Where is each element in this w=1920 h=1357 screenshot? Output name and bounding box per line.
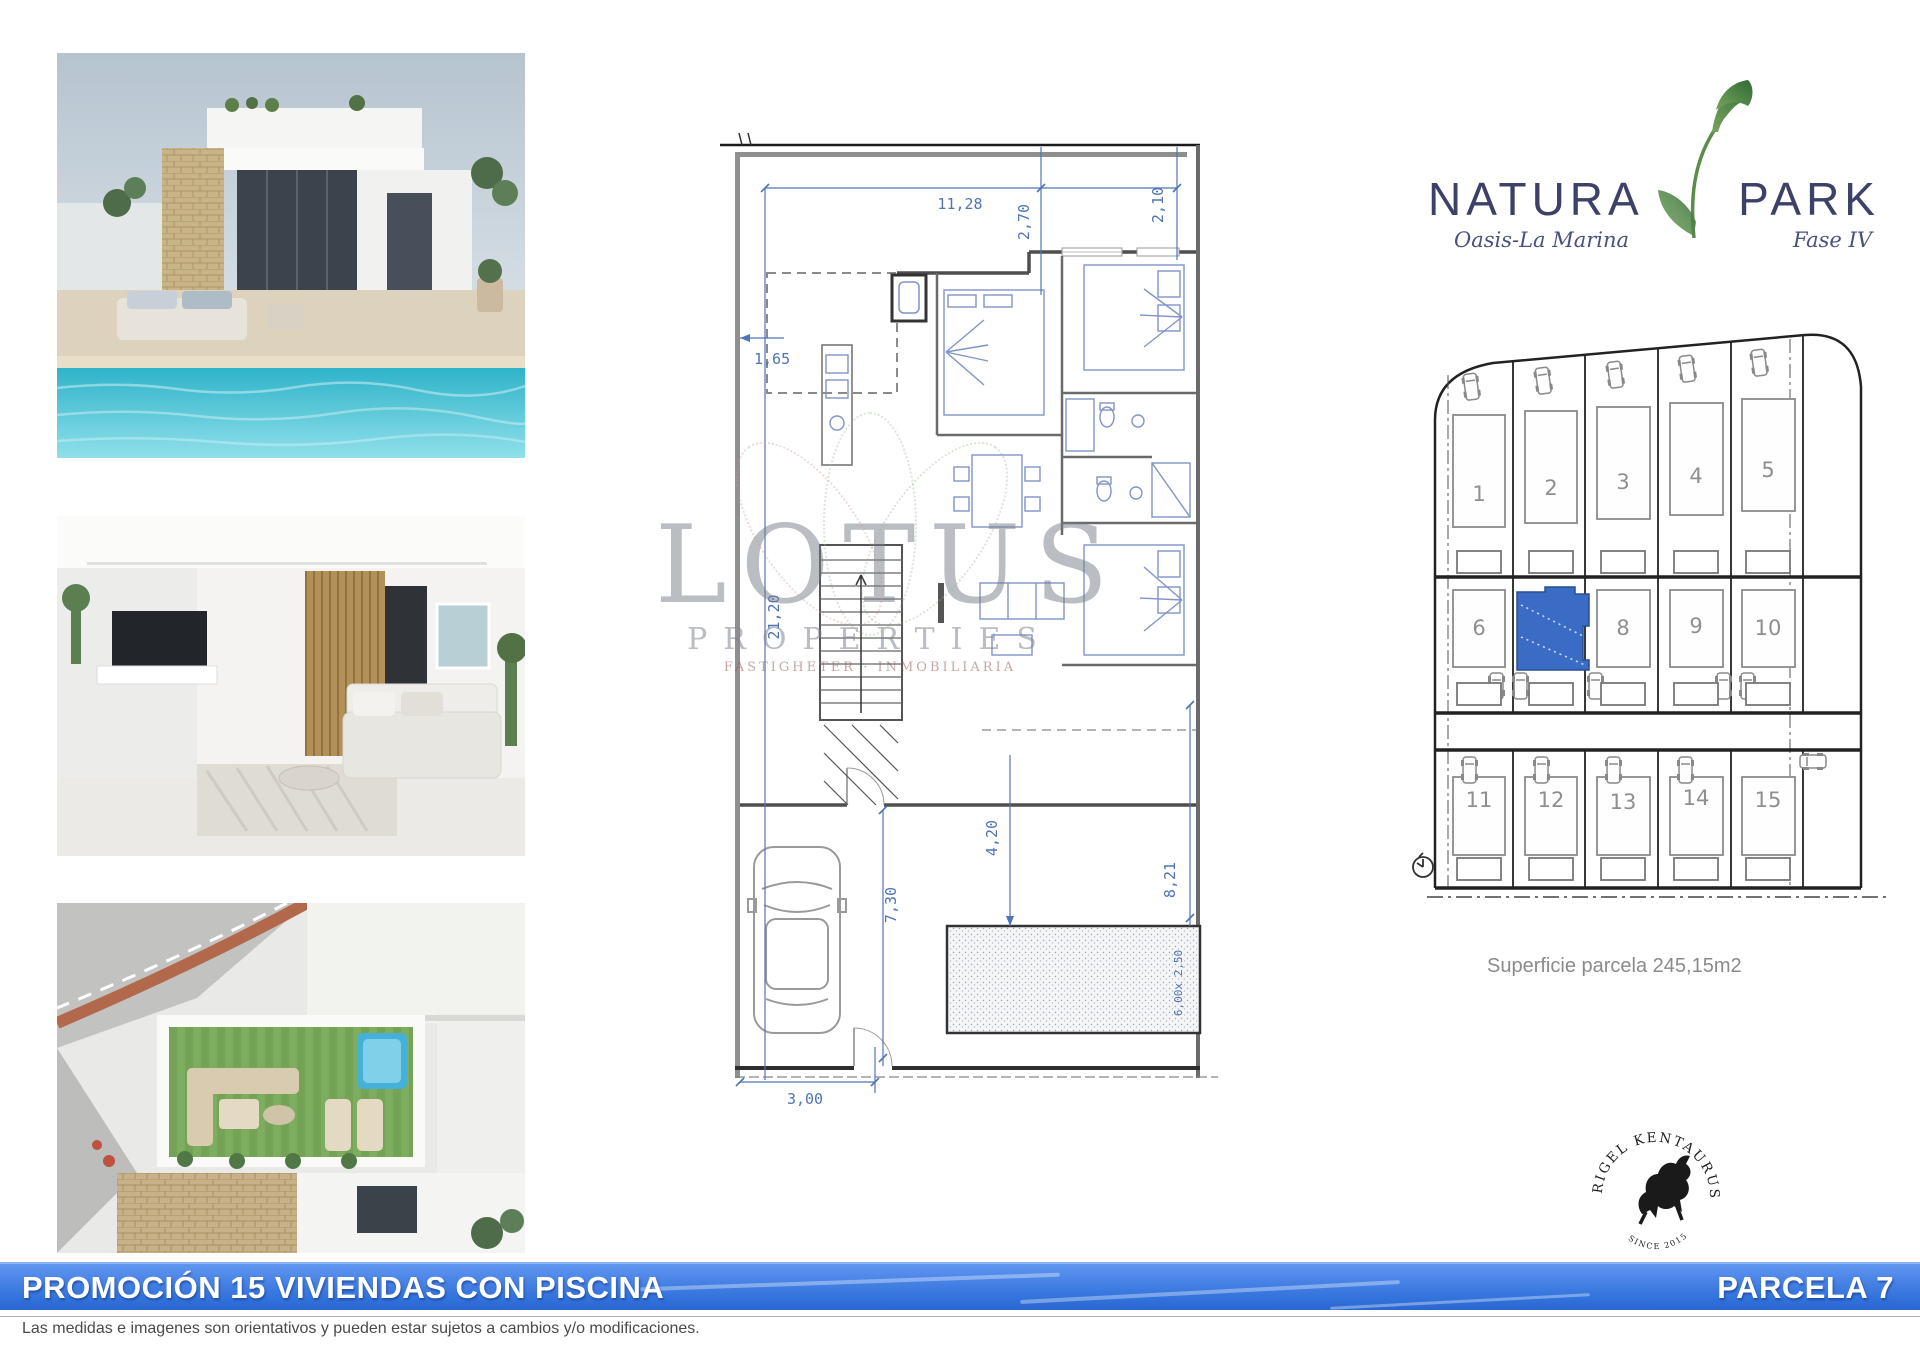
brand-name-right: PARK — [1738, 172, 1880, 226]
entry-door-arc — [847, 768, 884, 805]
site-caption: Superficie parcela 245,15m2 — [1487, 955, 1742, 978]
stairs — [820, 545, 902, 805]
building-walls — [740, 248, 1196, 805]
plot-number-3: 3 — [1616, 470, 1629, 494]
pool — [947, 926, 1200, 1033]
tv-screen — [112, 611, 207, 666]
disclaimer-text: Las medidas e imagenes son orientativos … — [22, 1320, 700, 1338]
dim-top-depth1: 2,70 — [1015, 204, 1033, 240]
dim-garden-depth: 7,30 — [882, 887, 900, 923]
plot-number-6: 6 — [1472, 616, 1485, 640]
plot-number-15: 15 — [1755, 788, 1782, 812]
brochure-page: 11,28 2,70 2,10 1,65 21,20 7,30 4,20 8,2… — [0, 0, 1920, 1357]
plot-boundary-bottom — [735, 1066, 1200, 1070]
north-icon — [1413, 853, 1433, 877]
site-row-1: 1 2 3 4 5 — [1453, 349, 1795, 573]
bed-3 — [1084, 545, 1184, 655]
plot-number-12: 12 — [1538, 788, 1565, 812]
plot-number-2: 2 — [1544, 476, 1557, 500]
car-icon — [748, 847, 846, 1033]
gate-arc — [854, 1028, 892, 1066]
plot-number-14: 14 — [1683, 786, 1710, 810]
stamp-since-text: SINCE 2015 — [1627, 1231, 1690, 1251]
stone-wall — [117, 1173, 297, 1253]
plot-number-13: 13 — [1610, 790, 1637, 814]
bathroom-2 — [1097, 463, 1190, 517]
sofa — [343, 712, 501, 778]
stone-pillar — [162, 148, 224, 308]
site-plan: 1 2 3 4 5 6 8 9 1 — [1405, 315, 1895, 1035]
plot-number-10: 10 — [1755, 616, 1782, 640]
photo-villa-pool — [57, 53, 525, 458]
photo-living-room — [57, 516, 525, 856]
dim-plot-depth: 21,20 — [765, 594, 783, 639]
brand-tagline-left: Oasis-La Marina — [1454, 228, 1629, 252]
floor-plan: 11,28 2,70 2,10 1,65 21,20 7,30 4,20 8,2… — [592, 105, 1222, 1145]
footer-title: PROMOCIÓN 15 VIVIENDAS CON PISCINA — [22, 1270, 664, 1306]
kitchen — [822, 345, 852, 465]
plot-boundary-left — [735, 152, 740, 1078]
dim-top-width: 11,28 — [937, 195, 982, 213]
footer-divider — [0, 1316, 1920, 1317]
centaur-icon — [1639, 1155, 1691, 1224]
bed-master — [944, 290, 1044, 415]
brand-tagline-right: Fase IV — [1793, 228, 1872, 252]
dim-pool-offset: 4,20 — [983, 820, 1001, 856]
footer-bar: PROMOCIÓN 15 VIVIENDAS CON PISCINA PARCE… — [0, 1262, 1920, 1310]
dim-right-depth: 8,21 — [1161, 862, 1179, 898]
leaf-icon — [1636, 72, 1756, 247]
plot-7-highlight — [1517, 587, 1589, 670]
sofa-tv — [938, 583, 1064, 655]
bathroom-1 — [1066, 399, 1144, 451]
plot-number-5: 5 — [1761, 458, 1774, 482]
dim-pool-size: 6,00x 2,50 — [1172, 950, 1185, 1016]
plot-number-11: 11 — [1466, 788, 1493, 812]
rigel-stamp: RIGEL KENTAURUS SINCE 2015 — [1586, 1112, 1726, 1262]
dining-set — [954, 455, 1040, 527]
plot-number-4: 4 — [1689, 464, 1702, 488]
dim-top-depth2: 2,10 — [1149, 187, 1167, 223]
plot-number-1: 1 — [1472, 482, 1485, 506]
terrace-dashed — [767, 273, 897, 393]
footer-parcel: PARCELA 7 — [1717, 1270, 1894, 1306]
photo-aerial-roof — [57, 903, 525, 1253]
plot-number-8: 8 — [1616, 616, 1629, 640]
bed-2 — [1084, 265, 1184, 370]
brand-name-left: NATURA — [1428, 172, 1644, 226]
site-row-2: 6 8 9 10 — [1453, 587, 1795, 705]
brand-logo: NATURA PARK Oasis-La Marina Fase IV — [1428, 84, 1880, 264]
plot-number-9: 9 — [1689, 614, 1702, 638]
site-row-3: 11 12 13 14 15 — [1453, 753, 1826, 880]
dim-entry-width: 3,00 — [787, 1090, 823, 1108]
dim-left-offset: 1,65 — [754, 350, 790, 368]
